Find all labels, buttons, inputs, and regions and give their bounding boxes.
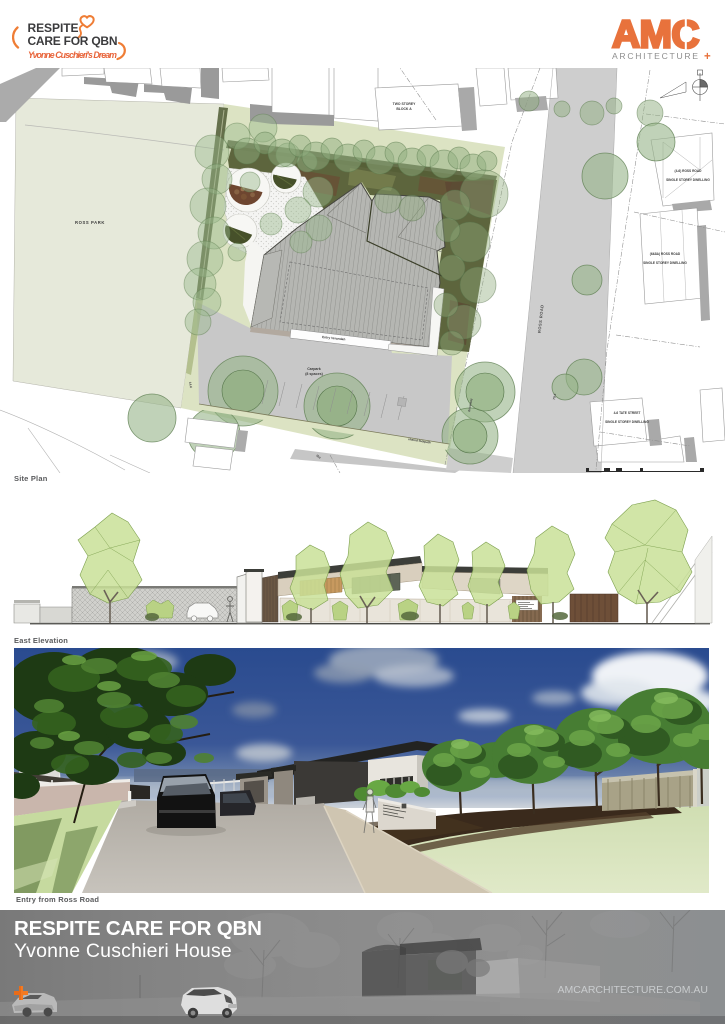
svg-text:SINGLE STOREY DWELLING: SINGLE STOREY DWELLING — [666, 178, 710, 182]
svg-text:Yvonne Cuschieri's Dream: Yvonne Cuschieri's Dream — [28, 50, 117, 60]
svg-text:CARE FOR QBN: CARE FOR QBN — [28, 34, 118, 48]
svg-text:Carpark: Carpark — [307, 367, 321, 371]
svg-text:SINGLE STOREY DWELLING: SINGLE STOREY DWELLING — [643, 261, 687, 265]
svg-text:(8 spaces): (8 spaces) — [305, 372, 323, 376]
svg-text:RESPITE: RESPITE — [28, 21, 79, 35]
svg-text:(6&8A) ROSS ROAD: (6&8A) ROSS ROAD — [650, 252, 681, 256]
svg-text:ARCHITECTURE: ARCHITECTURE — [612, 51, 700, 61]
svg-text:ROSS PARK: ROSS PARK — [75, 220, 105, 225]
svg-text:SINGLE STOREY DWELLING: SINGLE STOREY DWELLING — [605, 420, 649, 424]
svg-text:(4-6) ROSS ROAD: (4-6) ROSS ROAD — [675, 169, 703, 173]
svg-text:BLOCK A: BLOCK A — [396, 107, 412, 111]
svg-text:4-6 TATE STREET: 4-6 TATE STREET — [614, 411, 641, 415]
svg-text:TWO STOREY: TWO STOREY — [393, 102, 416, 106]
svg-text:+: + — [704, 51, 711, 62]
